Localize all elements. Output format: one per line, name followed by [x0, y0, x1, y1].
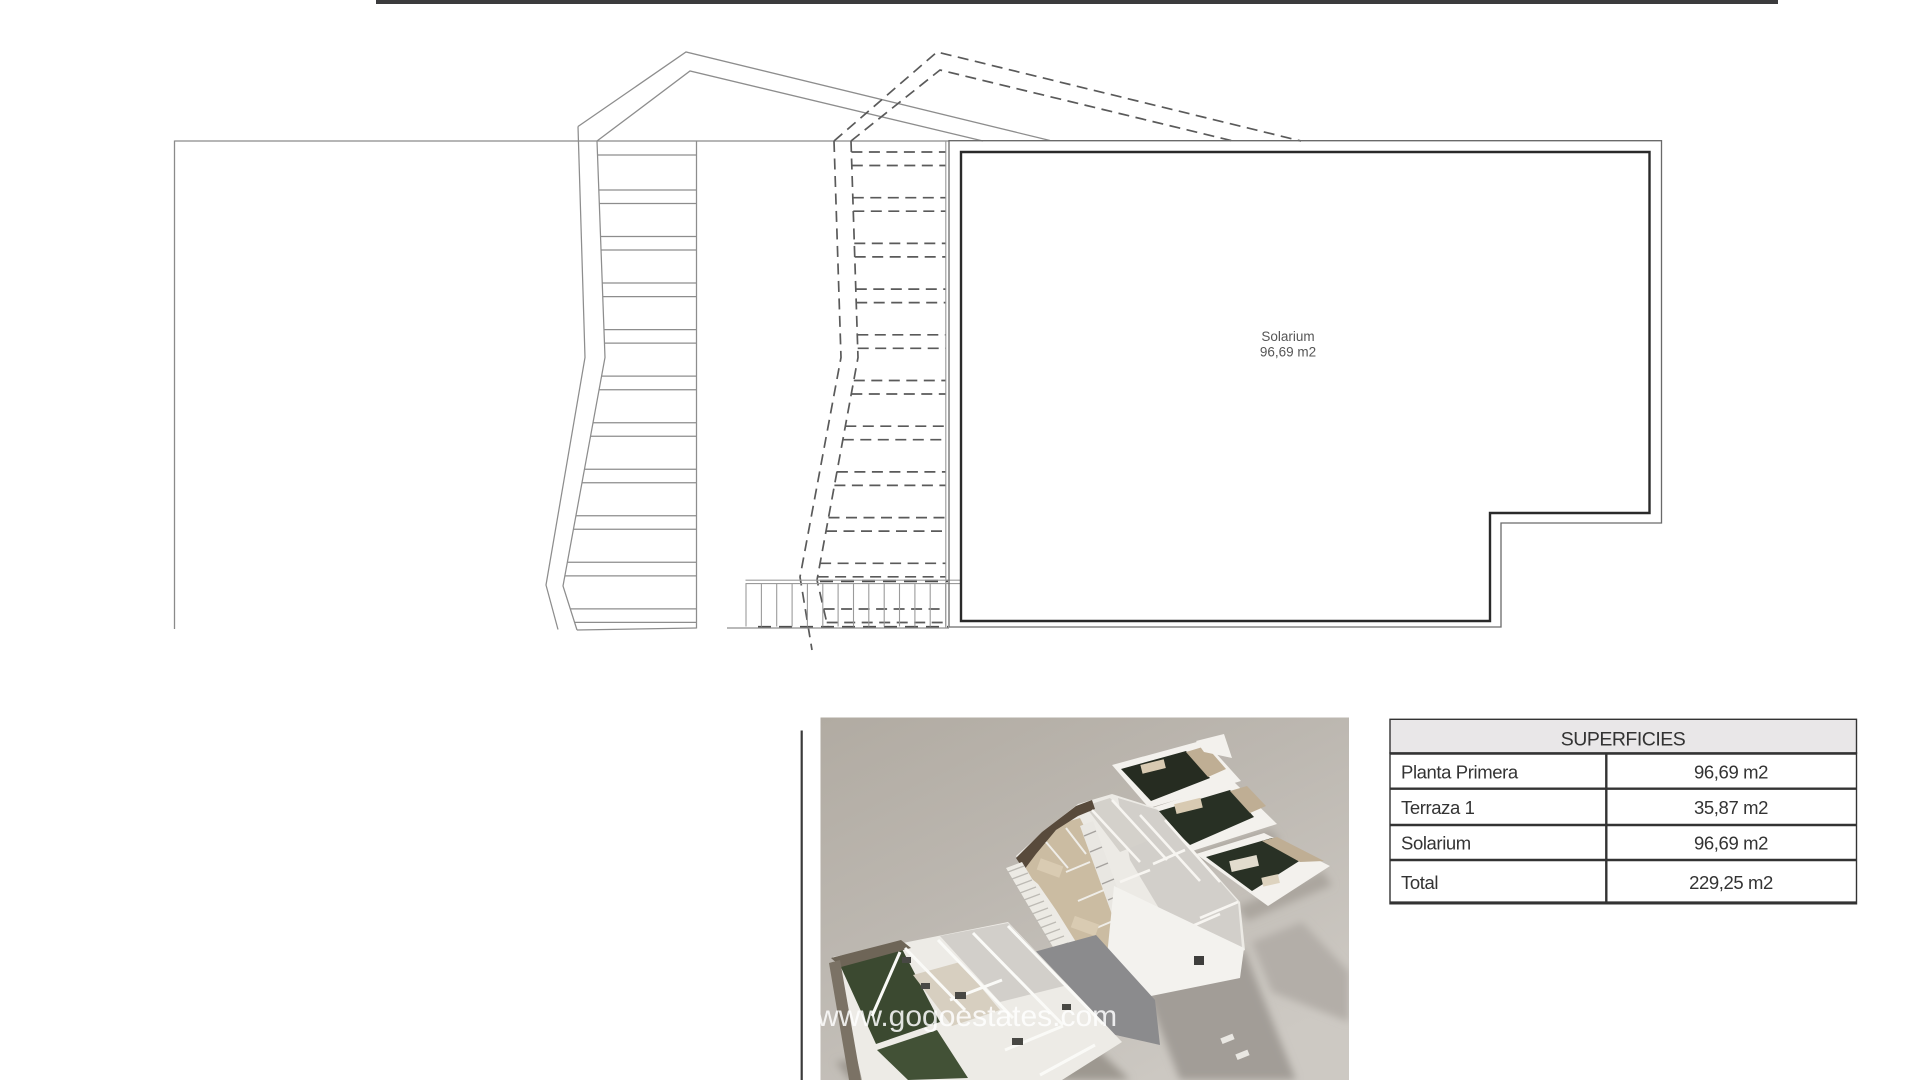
svg-text:Total: Total: [1401, 872, 1438, 893]
svg-text:96,69 m2: 96,69 m2: [1694, 761, 1768, 782]
svg-text:Planta Primera: Planta Primera: [1401, 761, 1519, 782]
svg-text:96,69 m2: 96,69 m2: [1260, 345, 1316, 360]
svg-text:Solarium: Solarium: [1401, 833, 1471, 854]
svg-text:35,87 m2: 35,87 m2: [1694, 797, 1768, 818]
svg-text:96,69 m2: 96,69 m2: [1694, 833, 1768, 854]
svg-text:www.gogoestates.com: www.gogoestates.com: [816, 1000, 1117, 1033]
svg-text:229,25 m2: 229,25 m2: [1689, 872, 1773, 893]
svg-text:SUPERFICIES: SUPERFICIES: [1561, 729, 1686, 751]
svg-text:Solarium: Solarium: [1261, 329, 1314, 344]
svg-text:Terraza 1: Terraza 1: [1401, 797, 1475, 818]
